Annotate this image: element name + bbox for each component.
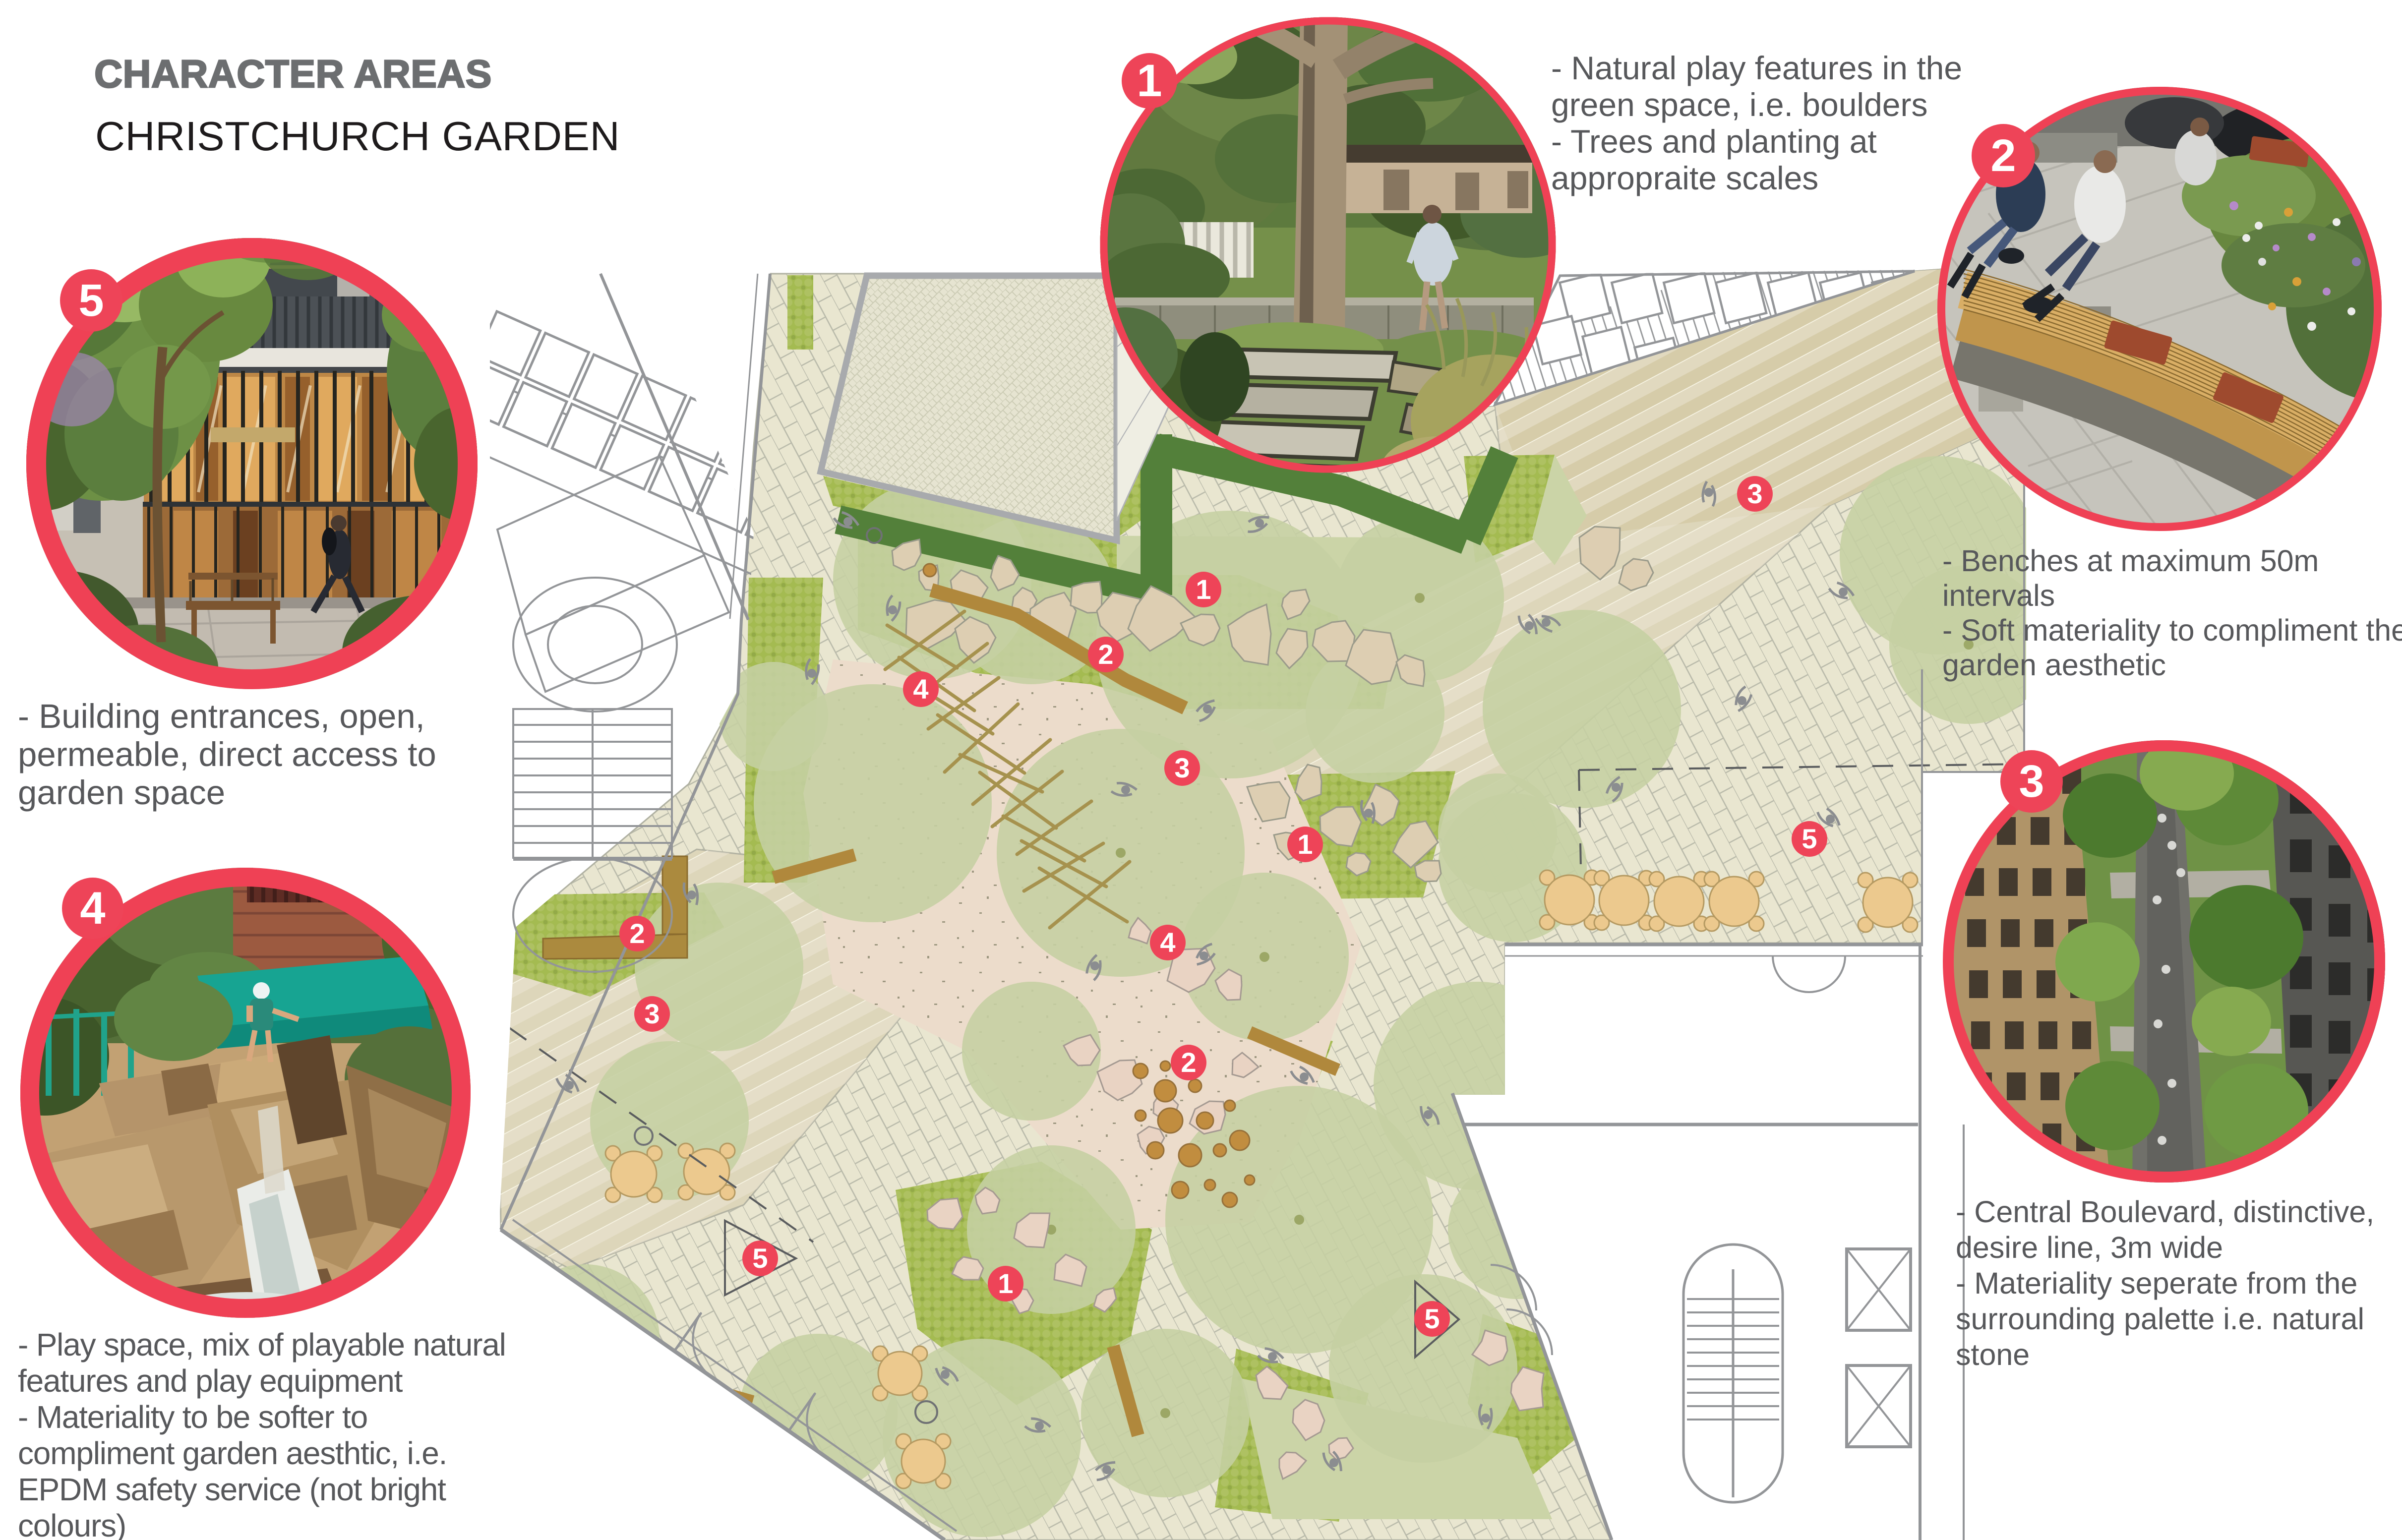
svg-text:2: 2 [629, 918, 645, 949]
svg-text:4: 4 [1160, 927, 1175, 958]
svg-text:3: 3 [644, 998, 660, 1029]
svg-text:4: 4 [913, 673, 928, 705]
svg-text:4: 4 [80, 883, 105, 934]
svg-text:5: 5 [1801, 823, 1817, 854]
svg-text:5: 5 [78, 275, 104, 326]
svg-text:1: 1 [998, 1268, 1013, 1299]
svg-text:2: 2 [1181, 1047, 1196, 1078]
svg-text:2: 2 [1098, 639, 1113, 670]
svg-text:1: 1 [1297, 829, 1313, 860]
svg-text:3: 3 [2019, 756, 2044, 807]
svg-text:2: 2 [1990, 130, 2016, 181]
svg-text:5: 5 [1424, 1303, 1440, 1334]
svg-text:1: 1 [1196, 574, 1211, 605]
svg-text:5: 5 [752, 1243, 768, 1274]
svg-text:3: 3 [1174, 752, 1190, 783]
svg-text:3: 3 [1747, 478, 1762, 509]
svg-text:1: 1 [1137, 56, 1162, 106]
